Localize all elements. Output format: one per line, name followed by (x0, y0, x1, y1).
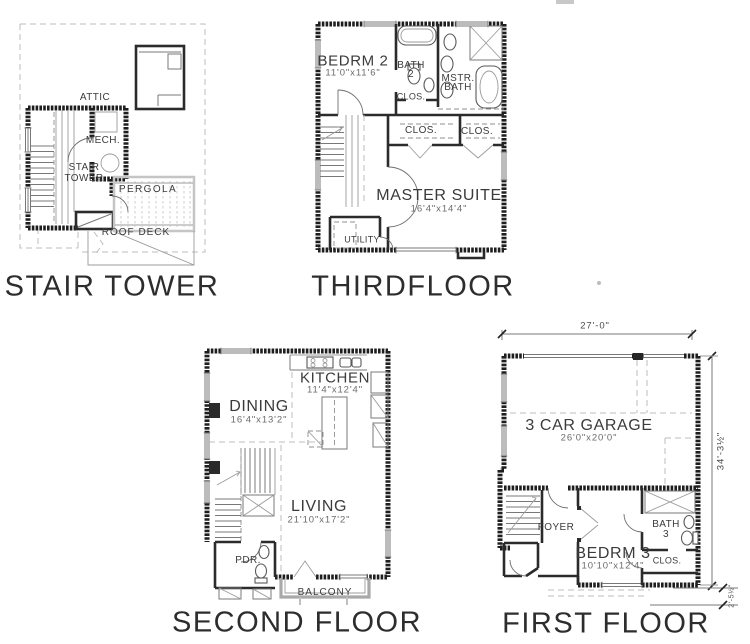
master-suite-label: MASTER SUITE (376, 188, 501, 204)
floor-plan-sheet: ATTIC MECH. STAIR TOWER PERGOLA ROOF DEC… (0, 0, 750, 644)
stray-mark (597, 281, 601, 285)
powder-room (215, 542, 275, 599)
bedrm2-label: BEDRM 2 (318, 54, 389, 69)
kitchen-label: KITCHEN (300, 371, 370, 386)
third-floor-drawing (308, 12, 513, 264)
sink-icon (340, 358, 361, 367)
toilet-icon (444, 34, 456, 50)
utility-label: UTILITY (344, 236, 380, 245)
overall-height-dimension: 34'-3½" (716, 432, 726, 470)
closet-top-label: CLOS. (397, 93, 426, 102)
shower-icon (470, 26, 502, 60)
bedrm2-dims: 11'0"x11'6" (325, 68, 380, 78)
bedrm3-dims: 10'10"x12'4" (582, 561, 645, 571)
toilet-icon (255, 564, 267, 583)
living-label: LIVING (291, 499, 347, 515)
dining-dims: 16'4"x13'2" (231, 415, 288, 425)
balcony (281, 561, 369, 605)
stairs (506, 490, 542, 543)
pergola-label: PERGOLA (119, 185, 177, 195)
second-floor-title: SECOND FLOOR (172, 607, 422, 640)
powder-label: PDR. (235, 556, 261, 566)
living-dims: 21'10"x17'2" (288, 515, 351, 525)
sink-icon (684, 516, 694, 529)
range-icon (307, 357, 333, 368)
first-floor-title: FIRST FLOOR (502, 608, 710, 641)
sink-icon (424, 78, 434, 92)
stair-tower-label-line1: STAIR (69, 163, 100, 173)
overall-width-dimension: 27'-0" (580, 321, 610, 331)
mstr-bath-label-line2: BATH (444, 83, 472, 93)
island (322, 397, 347, 449)
entry-porch (504, 543, 578, 585)
master-suite-dims: 16'4"x14'4" (411, 204, 468, 214)
dining-label: DINING (229, 399, 289, 415)
foyer-label: FOYER (538, 523, 574, 533)
third-floor-title: THIRDFLOOR (311, 271, 515, 304)
bathtub-icon (398, 26, 436, 45)
shower-icon (645, 491, 695, 513)
first-floor-plan: 27'-0" 34'-3½" 2'-5½" 3 CAR GARAGE 26'0"… (490, 318, 750, 610)
stair-tower-label-line2: TOWER (64, 174, 103, 184)
second-floor-plan: KITCHEN 11'4"x12'4" DINING 16'4"x13'2" L… (195, 345, 410, 607)
closet-label: CLOS. (653, 557, 682, 566)
garage-dims: 26'0"x20'0" (561, 433, 618, 443)
balcony-label: BALCONY (298, 588, 353, 598)
rear-offset-dimension: 2'-5½" (729, 584, 736, 607)
hall-stairs (320, 115, 364, 207)
stairs (30, 110, 74, 224)
closet-right-label: CLOS. (461, 127, 493, 137)
cabinets (371, 372, 388, 447)
stair-tower-plan: ATTIC MECH. STAIR TOWER PERGOLA ROOF DEC… (8, 16, 218, 266)
roof-deck-label: ROOF DECK (102, 228, 170, 238)
chase-block (209, 403, 220, 418)
attic-room (136, 46, 184, 109)
toilet-icon (682, 531, 699, 545)
bathtub-icon (476, 66, 502, 108)
stair-landing (243, 495, 274, 516)
attic-label: ATTIC (80, 93, 110, 103)
closet-left-label: CLOS. (405, 126, 437, 136)
bath2-label-line2: 2 (408, 70, 414, 80)
stair-tower-title: STAIR TOWER (5, 271, 220, 304)
third-floor-plan: BEDRM 2 11'0"x11'6" BATH 2 MSTR. BATH CL… (308, 12, 513, 264)
stairs (215, 445, 281, 573)
bath3-label-line2: 3 (663, 530, 669, 540)
mech-label: MECH. (86, 136, 120, 146)
cropped-watermark-fragment (556, 0, 574, 4)
master-bath (438, 26, 504, 109)
utility-room (330, 217, 393, 250)
chase-block (209, 461, 220, 474)
kitchen-dims: 11'4"x12'4" (307, 385, 363, 395)
